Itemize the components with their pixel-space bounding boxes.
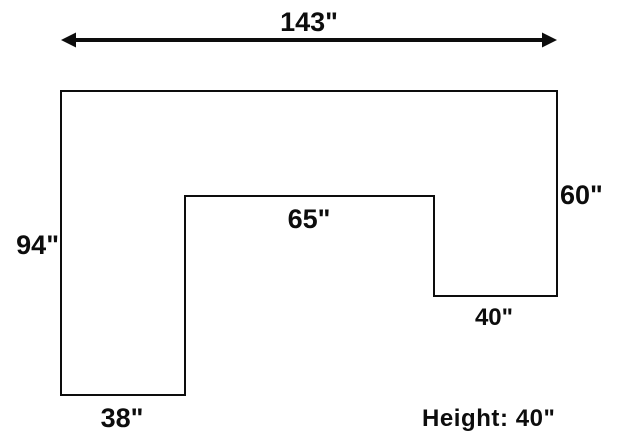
svg-text:60": 60" [560, 180, 603, 210]
svg-text:40": 40" [475, 304, 513, 331]
svg-text:38": 38" [101, 403, 144, 433]
svg-text:94": 94" [16, 230, 59, 260]
svg-text:65": 65" [288, 204, 331, 234]
svg-text:143": 143" [280, 7, 338, 37]
svg-text:Height: 40": Height: 40" [422, 405, 555, 432]
